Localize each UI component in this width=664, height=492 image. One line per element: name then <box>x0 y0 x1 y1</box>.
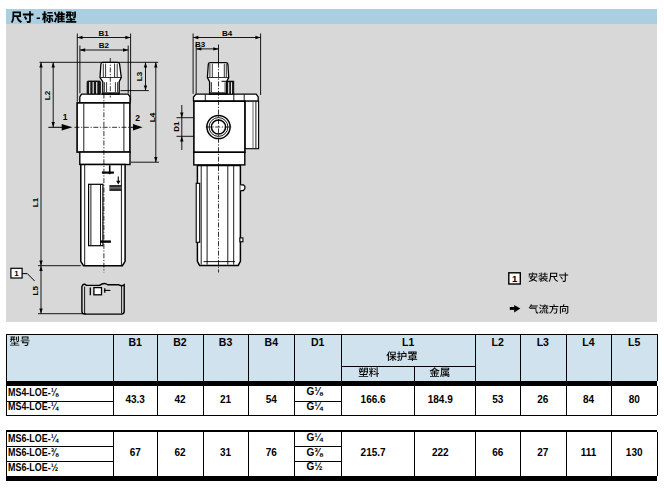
svg-text:2: 2 <box>135 113 140 123</box>
svg-text:D1: D1 <box>172 121 181 132</box>
svg-text:L4: L4 <box>148 112 157 122</box>
svg-text:B1: B1 <box>98 29 109 38</box>
svg-text:L2: L2 <box>43 90 52 100</box>
svg-text:B4: B4 <box>222 29 233 38</box>
svg-text:B2: B2 <box>99 41 110 50</box>
svg-text:L1: L1 <box>31 197 40 207</box>
svg-text:L3: L3 <box>135 71 144 81</box>
svg-text:1: 1 <box>14 269 19 278</box>
svg-text:B3: B3 <box>195 40 206 49</box>
svg-text:1: 1 <box>512 273 518 284</box>
svg-text:1: 1 <box>63 112 68 122</box>
svg-text:L5: L5 <box>31 286 40 296</box>
